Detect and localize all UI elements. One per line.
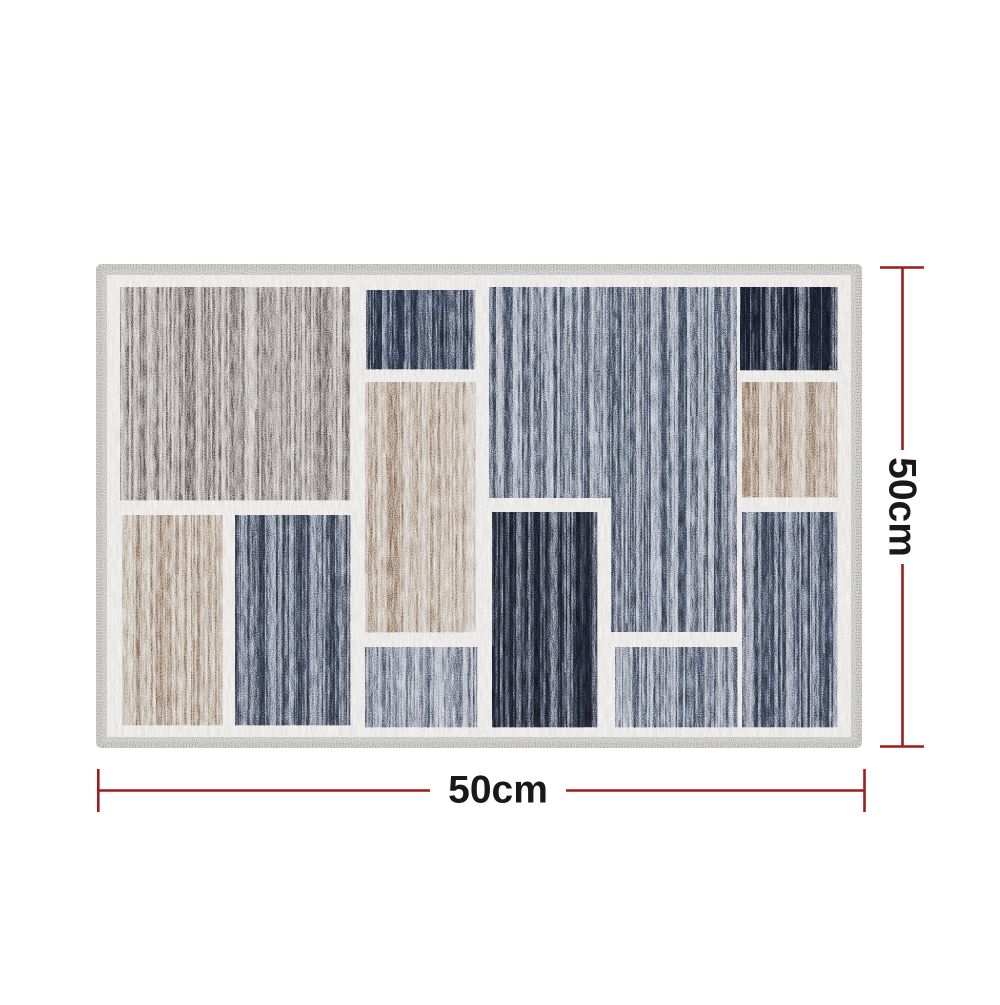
svg-text:50cm: 50cm xyxy=(881,457,924,557)
svg-text:50cm: 50cm xyxy=(448,769,548,812)
